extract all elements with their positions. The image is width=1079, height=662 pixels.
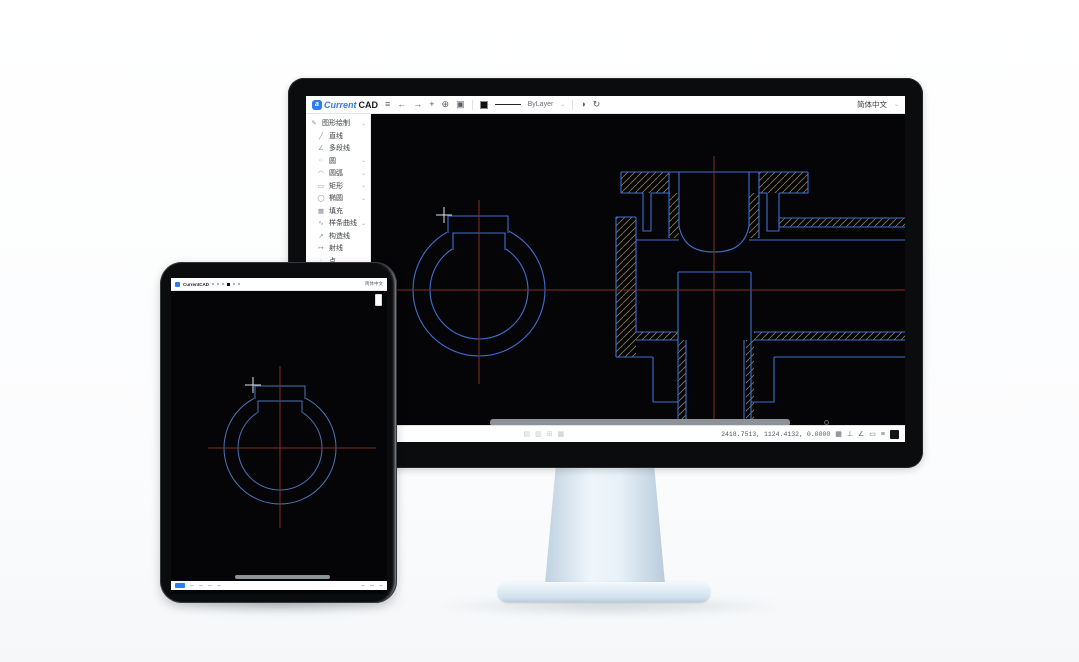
sidebar-item-label: 样条曲线: [329, 218, 357, 228]
valve-outline: [616, 172, 905, 425]
chevron-down-icon: ⌄: [361, 170, 366, 177]
sidebar-item-label: 填充: [329, 206, 343, 216]
lineweight-icon[interactable]: ≡: [881, 431, 885, 438]
chevron-down-icon: ⌄: [361, 195, 366, 202]
tablet-logo-text: CurrentCAD: [183, 282, 209, 287]
sidebar-item-label: 构造线: [329, 231, 350, 241]
arc-icon: ◠: [317, 169, 325, 177]
refresh-icon[interactable]: ↻: [593, 100, 601, 109]
chevron-down-icon[interactable]: ⌄: [560, 101, 565, 108]
sidebar-item-fill[interactable]: ▦ 填充: [306, 205, 370, 218]
tablet-scrollbar[interactable]: [235, 575, 330, 579]
sidebar-item-line[interactable]: ╱ 直线: [306, 130, 370, 143]
line-icon: ╱: [317, 132, 325, 140]
toolbar-separator: [572, 100, 573, 110]
toolbar-mini-icon[interactable]: [217, 283, 219, 285]
chevron-down-icon: ⌄: [361, 182, 366, 189]
sidebar-item-label: 圆: [329, 156, 336, 166]
fullscreen-button[interactable]: [890, 430, 899, 439]
sidebar-item-arc[interactable]: ◠ 圆弧 ⌄: [306, 167, 370, 180]
grid-icon[interactable]: ▦: [835, 430, 842, 438]
sidebar-item-label: 图形绘制: [322, 118, 350, 128]
sidebar-item-label: 直线: [329, 131, 343, 141]
undo-icon[interactable]: ←: [397, 100, 406, 109]
sidebar-item-label: 射线: [329, 243, 343, 253]
toolbar-mini-icon[interactable]: [233, 283, 235, 285]
toolbar-separator: [472, 100, 473, 110]
statusbar-mini-item: [199, 585, 203, 587]
app-logo[interactable]: a Current CAD: [312, 100, 378, 110]
pencil-icon: ✎: [310, 119, 318, 127]
osnap-icon[interactable]: ▭: [869, 430, 876, 438]
toolbar-mini-icon[interactable]: [238, 283, 240, 285]
sidebar-item-ray[interactable]: ↦ 射线: [306, 242, 370, 255]
drawing-canvas[interactable]: ↖ ⊞ ⊕ ⌂ ▤: [371, 114, 905, 425]
add-icon[interactable]: +: [429, 100, 434, 109]
logo-text-secondary: CAD: [359, 100, 379, 110]
toolbar-mini-icon[interactable]: [222, 283, 224, 285]
rectangle-icon: ▭: [317, 182, 325, 190]
chevron-down-icon: ⌄: [361, 120, 366, 127]
language-selector[interactable]: 简体中文: [857, 99, 887, 110]
logo-text-primary: Current: [324, 100, 357, 110]
sidebar-item-polyline[interactable]: ∠ 多段线: [306, 142, 370, 155]
color-swatch[interactable]: [480, 101, 488, 109]
ellipse-icon: ◯: [317, 194, 325, 202]
view-icon[interactable]: ▦: [558, 430, 565, 438]
centerlines: [371, 156, 905, 425]
fill-icon: ▦: [317, 207, 325, 215]
view-icon[interactable]: ▥: [535, 430, 542, 438]
ray-icon: ↦: [317, 244, 325, 252]
language-selector[interactable]: 简体中文: [365, 281, 383, 287]
statusbar-mini-item: [217, 585, 221, 587]
tablet-floating-toolbar[interactable]: [375, 294, 382, 306]
menu-icon[interactable]: ≡: [385, 100, 390, 109]
statusbar-mini-item: [190, 585, 194, 587]
linetype-label[interactable]: ByLayer: [528, 101, 554, 108]
chevron-down-icon[interactable]: ⌄: [894, 101, 899, 108]
monitor-stand-base: [498, 582, 710, 602]
cad-drawing: [371, 114, 905, 425]
panel-icon[interactable]: ▣: [456, 100, 465, 109]
statusbar-mini-item: [370, 585, 374, 587]
statusbar-mini-item: [379, 585, 383, 587]
toolbar-mini-icon[interactable]: [212, 283, 214, 285]
chevron-down-icon: ⌄: [361, 157, 366, 164]
tablet-screen: CurrentCAD 简体中文: [171, 278, 387, 594]
tablet-cad-drawing[interactable]: [171, 291, 387, 578]
polar-icon[interactable]: ∠: [858, 430, 864, 438]
sidebar-item-label: 圆弧: [329, 168, 343, 178]
polyline-icon: ∠: [317, 144, 325, 152]
spline-icon: ∿: [317, 219, 325, 227]
tablet-toolbar: CurrentCAD 简体中文: [171, 278, 387, 291]
tablet-model-tab[interactable]: [175, 583, 185, 588]
magnifier-icon[interactable]: ⊕: [442, 100, 450, 109]
cursor-coordinates: 2418.7513, 1124.4132, 0.0000: [721, 431, 830, 438]
history-icon[interactable]: ◑: [580, 100, 585, 109]
view-icon[interactable]: ⊞: [547, 430, 553, 438]
sidebar-item-ellipse[interactable]: ◯ 椭圆 ⌄: [306, 192, 370, 205]
sidebar-item-rectangle[interactable]: ▭ 矩形 ⌄: [306, 180, 370, 193]
sidebar-item-label: 多段线: [329, 143, 350, 153]
sidebar-item-circle[interactable]: ○ 圆 ⌄: [306, 155, 370, 168]
sidebar-item-construction-line[interactable]: ↗ 构造线: [306, 230, 370, 243]
circle-icon: ○: [317, 157, 325, 164]
top-toolbar: a Current CAD ≡ ← → + ⊕ ▣ ByLayer ⌄ ◑ ↻ …: [306, 96, 905, 114]
sidebar-item-spline[interactable]: ∿ 样条曲线 ⌄: [306, 217, 370, 230]
logo-badge-icon: [175, 282, 180, 287]
ortho-icon[interactable]: ⊥: [847, 430, 853, 438]
tablet-status-bar: [171, 581, 387, 590]
logo-badge-icon: a: [312, 100, 322, 110]
sidebar-item-label: 椭圆: [329, 193, 343, 203]
sidebar-item-draw-group[interactable]: ✎ 图形绘制 ⌄: [306, 117, 370, 130]
view-icon[interactable]: ▤: [523, 430, 530, 438]
color-swatch[interactable]: [227, 283, 230, 286]
statusbar-mini-item: [208, 585, 212, 587]
statusbar-mini-item: [361, 585, 365, 587]
sidebar-item-label: 矩形: [329, 181, 343, 191]
linetype-preview[interactable]: [495, 104, 521, 105]
construction-line-icon: ↗: [317, 232, 325, 240]
monitor-stand-neck: [545, 466, 665, 584]
valve-hatch-regions: [616, 172, 905, 425]
chevron-down-icon: ⌄: [361, 220, 366, 227]
redo-icon[interactable]: →: [413, 100, 422, 109]
